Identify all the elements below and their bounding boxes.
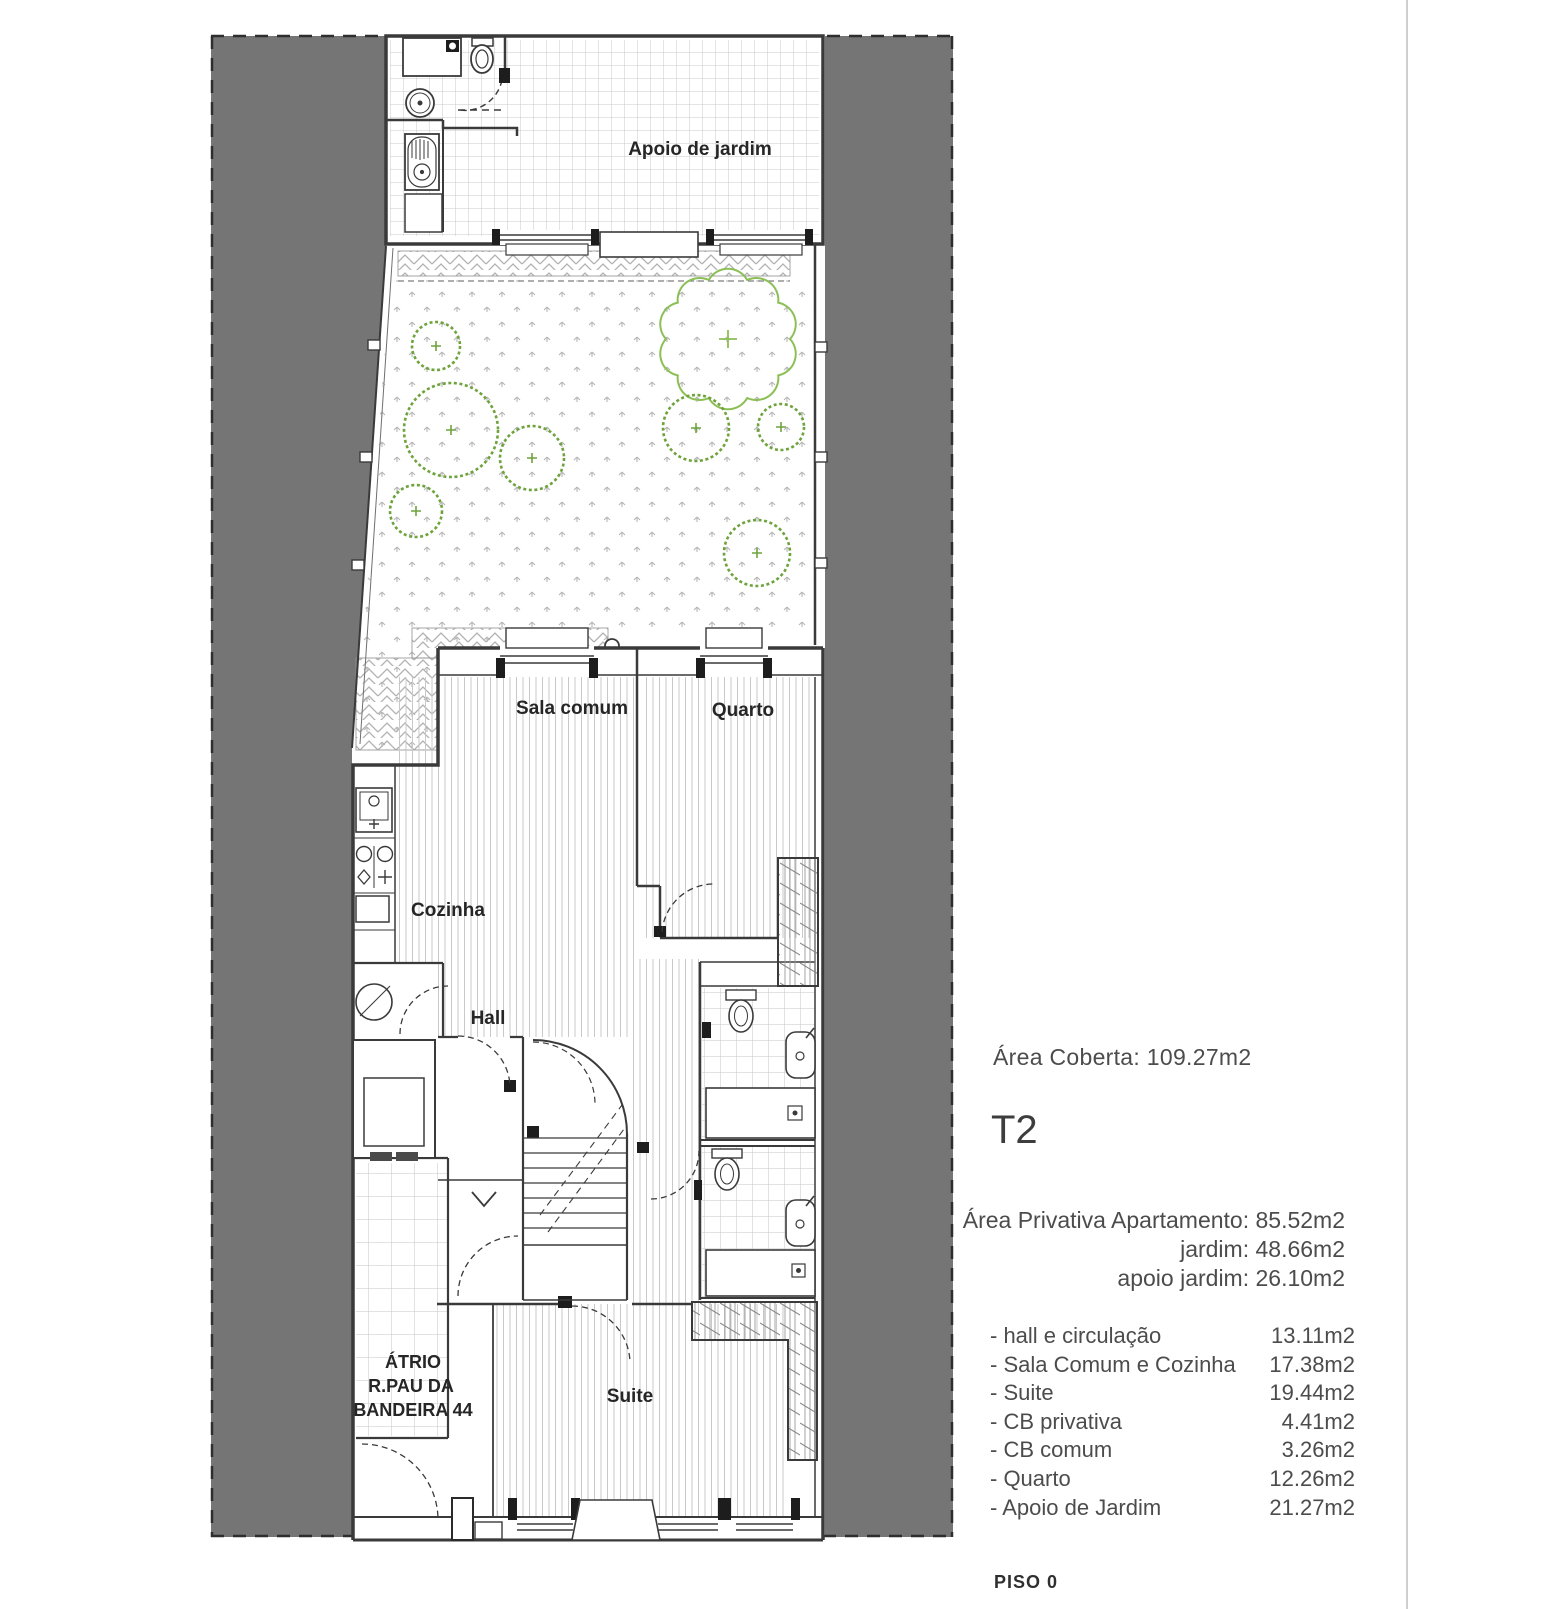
svg-text:R.PAU DA: R.PAU DA <box>368 1376 454 1396</box>
apartment: Sala comum Quarto Cozinha Hall Suite ÁTR… <box>353 628 823 1540</box>
kitchen-sink-icon <box>356 788 392 832</box>
room-label-apoio: Apoio de jardim <box>628 139 772 160</box>
quarto-window <box>696 628 772 678</box>
site-right-parcel <box>825 36 953 1537</box>
room-label-sala: Sala comum <box>516 698 628 719</box>
bathtub-icon <box>405 134 439 190</box>
room-area-row: - CB privativa4.41m2 <box>990 1408 1355 1437</box>
svg-text:BANDEIRA 44: BANDEIRA 44 <box>353 1400 472 1420</box>
door-post <box>499 68 510 83</box>
laundry-sink-icon <box>356 984 392 1020</box>
floor-label: PISO 0 <box>994 1572 1058 1593</box>
apoio-windows <box>492 229 813 257</box>
quarto-wardrobe <box>778 858 818 986</box>
room-area-row: - Suite19.44m2 <box>990 1379 1355 1408</box>
area-privativa-text: Área Privativa Apartamento: 85.52m2 <box>930 1206 1345 1235</box>
cabinet <box>405 194 442 232</box>
room-label-quarto: Quarto <box>712 700 774 721</box>
room-area-row: - CB comum3.26m2 <box>990 1436 1355 1465</box>
private-areas-block: Área Privativa Apartamento: 85.52m2 jard… <box>930 1206 1345 1293</box>
area-jardim-text: jardim: 48.66m2 <box>930 1235 1345 1264</box>
svg-text:ÁTRIO: ÁTRIO <box>385 1351 441 1372</box>
room-area-row: - hall e circulação13.11m2 <box>990 1322 1355 1351</box>
room-label-hall: Hall <box>471 1008 506 1029</box>
room-area-list: - hall e circulação13.11m2 - Sala Comum … <box>990 1322 1355 1522</box>
room-area-row: - Apoio de Jardim21.27m2 <box>990 1494 1355 1523</box>
washing-machine-icon <box>403 38 461 76</box>
unit-type-label: T2 <box>991 1108 1038 1153</box>
kitchen-counter <box>356 896 389 922</box>
room-area-row: - Sala Comum e Cozinha17.38m2 <box>990 1351 1355 1380</box>
area-coberta-text: Área Coberta: 109.27m2 <box>993 1044 1251 1071</box>
elevator <box>353 1040 435 1161</box>
room-label-suite: Suite <box>607 1386 653 1407</box>
room-label-cozinha: Cozinha <box>411 900 485 921</box>
room-area-row: - Quarto12.26m2 <box>990 1465 1355 1494</box>
apoio-de-jardim-building: Apoio de jardim <box>386 36 823 257</box>
area-apoio-jardim-text: apoio jardim: 26.10m2 <box>930 1264 1345 1293</box>
floor-plan-page: Apoio de jardim <box>0 0 1556 1609</box>
sala-window <box>496 628 598 678</box>
toilet-icon <box>471 38 493 73</box>
round-sink-icon <box>406 89 434 117</box>
